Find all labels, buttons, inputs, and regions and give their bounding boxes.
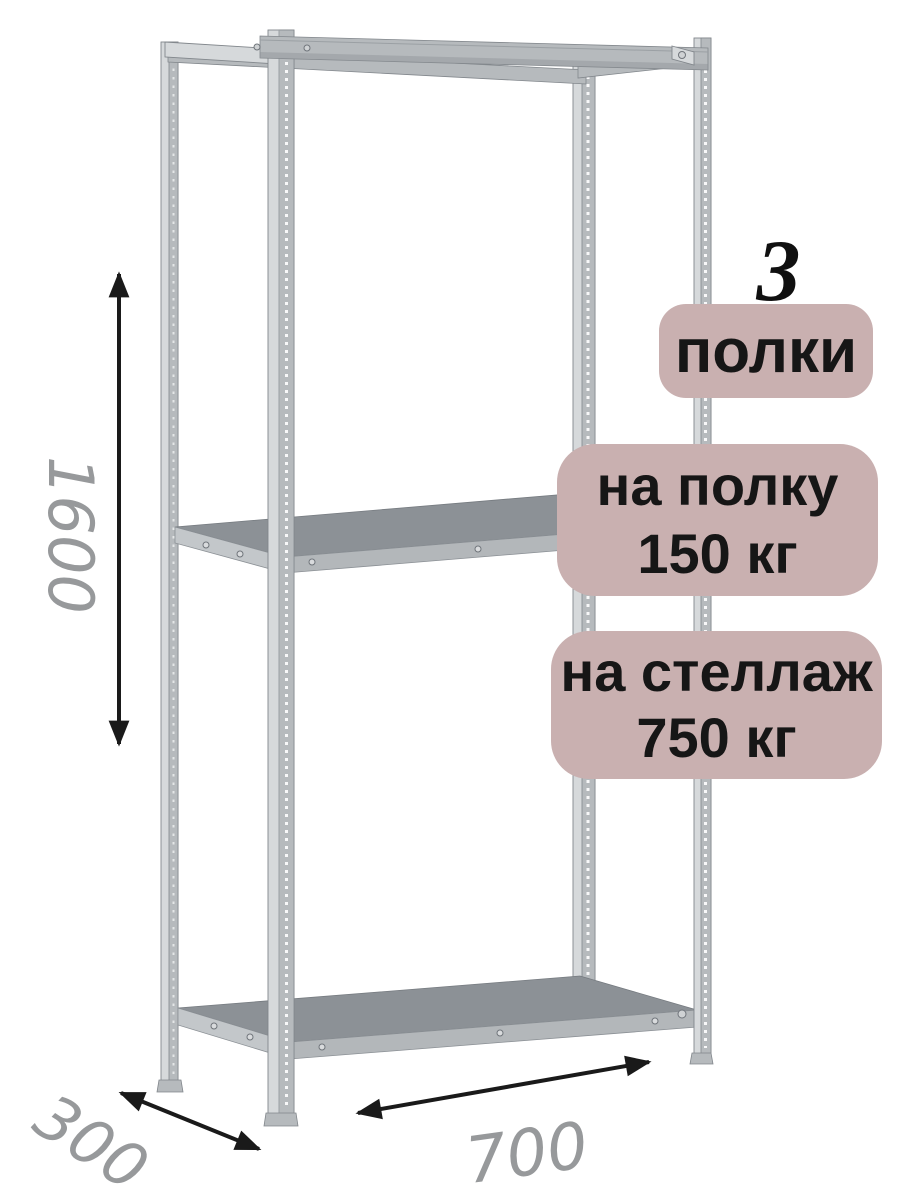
bottom-shelf (178, 976, 697, 1059)
shelf-load-line1: на полку (597, 452, 839, 520)
post-back-left (157, 42, 183, 1092)
height-dimension-label: 1600 (32, 453, 108, 617)
rack-load-line1: на стеллаж (560, 639, 872, 705)
rack-load-line2: 750 кг (636, 705, 796, 771)
post-front-left (264, 30, 298, 1126)
shelf-load-line2: 150 кг (637, 520, 797, 588)
shelving-rack-illustration (0, 0, 900, 1200)
shelf-load-badge: на полку 150 кг (557, 444, 878, 596)
product-image: 1600 300 700 3 полки на полку 150 кг на … (0, 0, 900, 1200)
shelf-count-badge-label: полки (675, 316, 857, 387)
width-dimension-arrow (358, 1062, 649, 1113)
shelf-count-number: 3 (672, 226, 885, 316)
rack-load-badge: на стеллаж 750 кг (551, 631, 882, 779)
shelf-count-badge: полки (659, 304, 873, 398)
